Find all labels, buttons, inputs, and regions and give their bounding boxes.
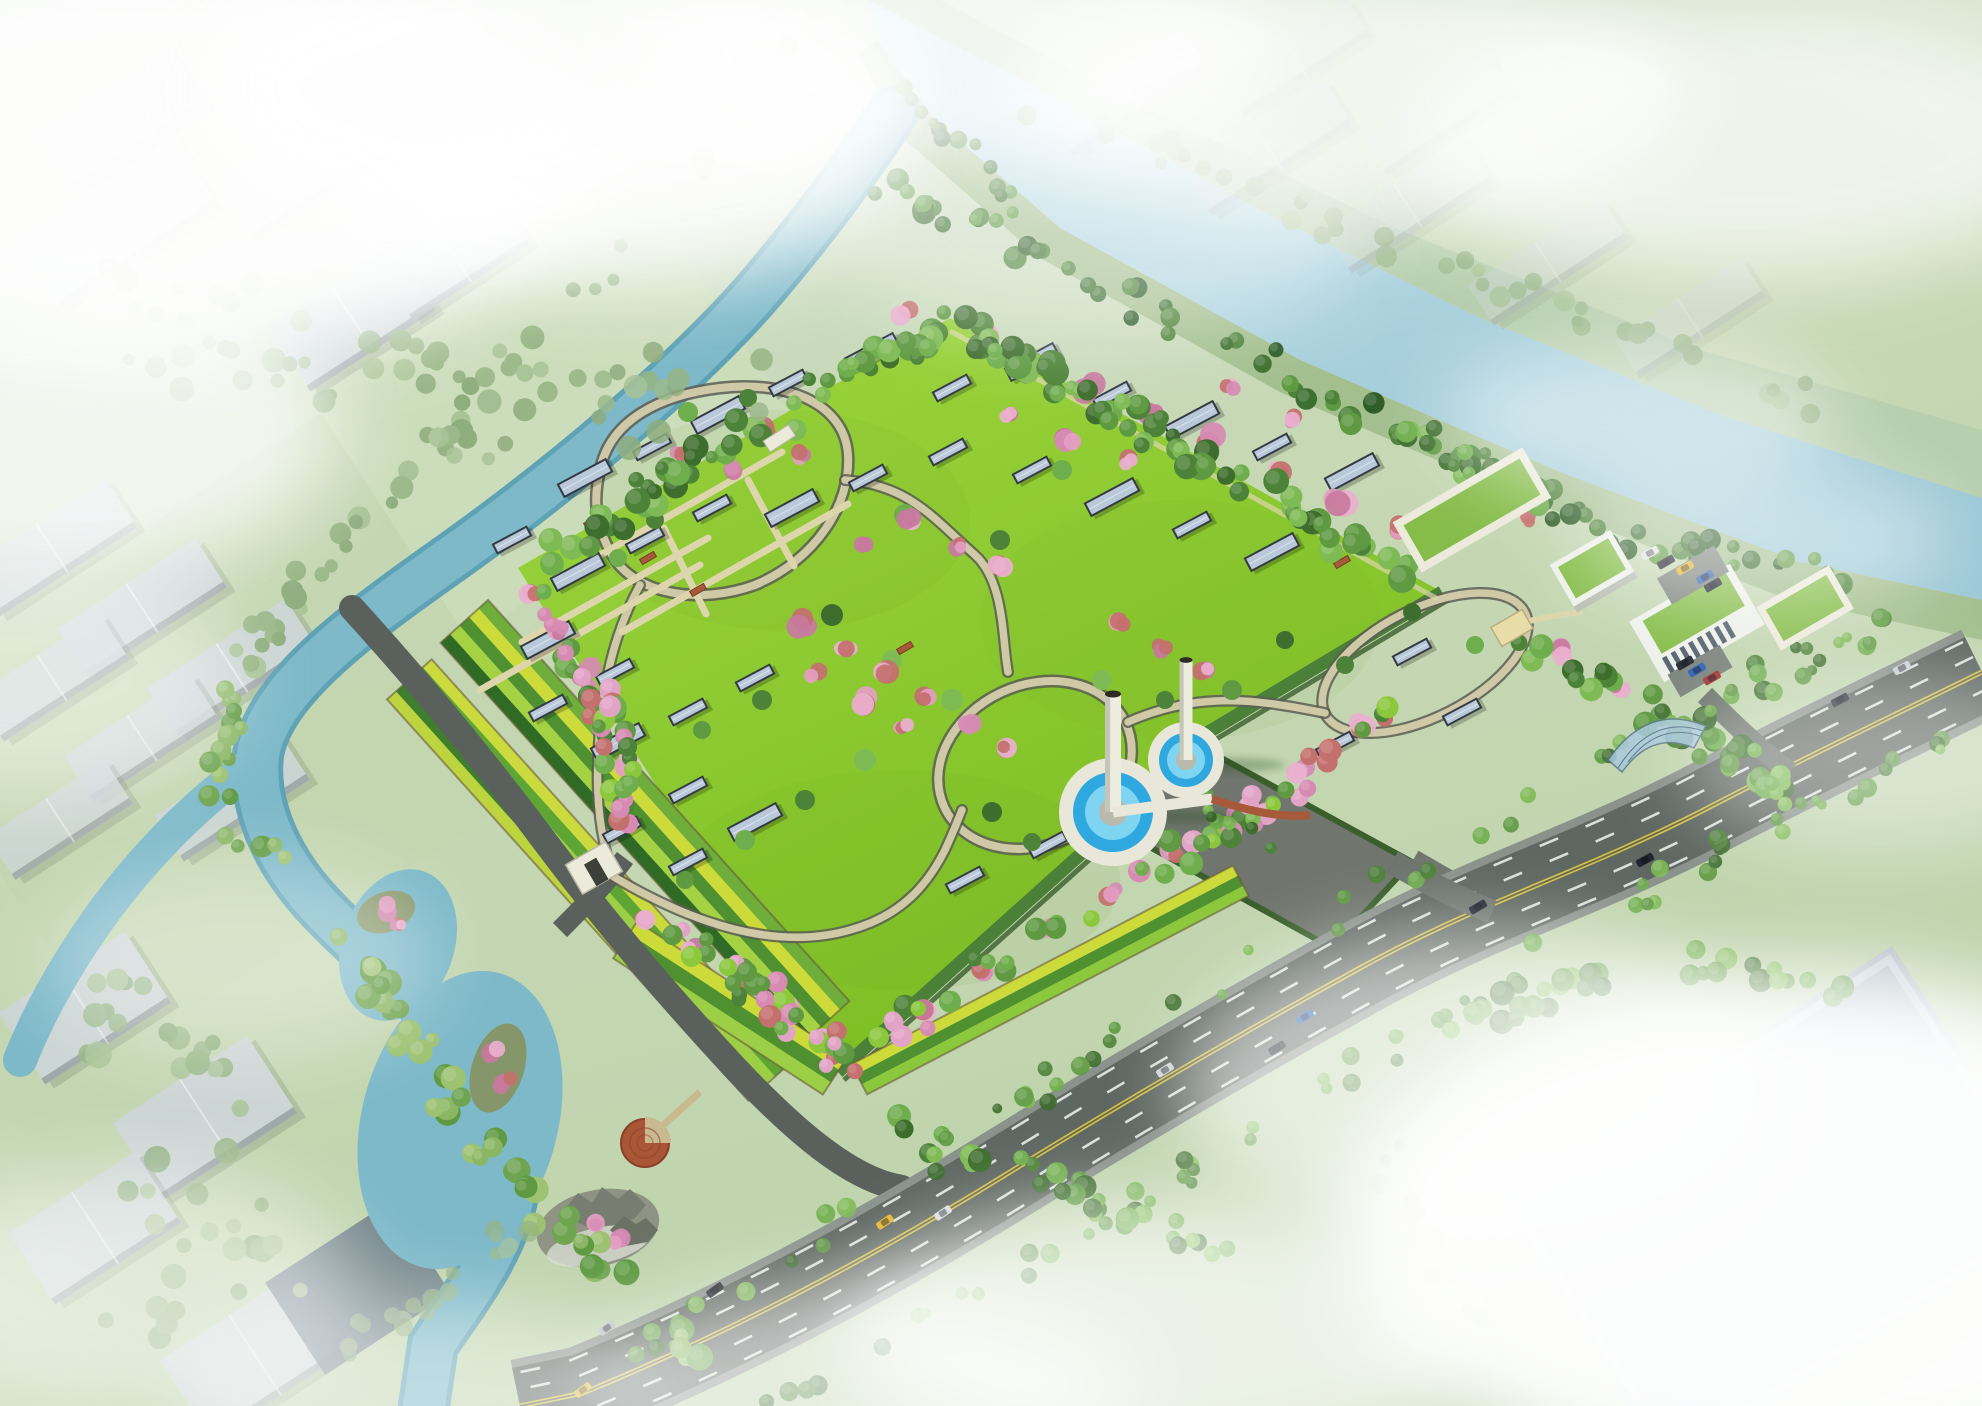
aerial-rendering <box>0 0 1982 1406</box>
vignette-haze <box>0 0 1982 1406</box>
scene <box>0 0 1982 1406</box>
